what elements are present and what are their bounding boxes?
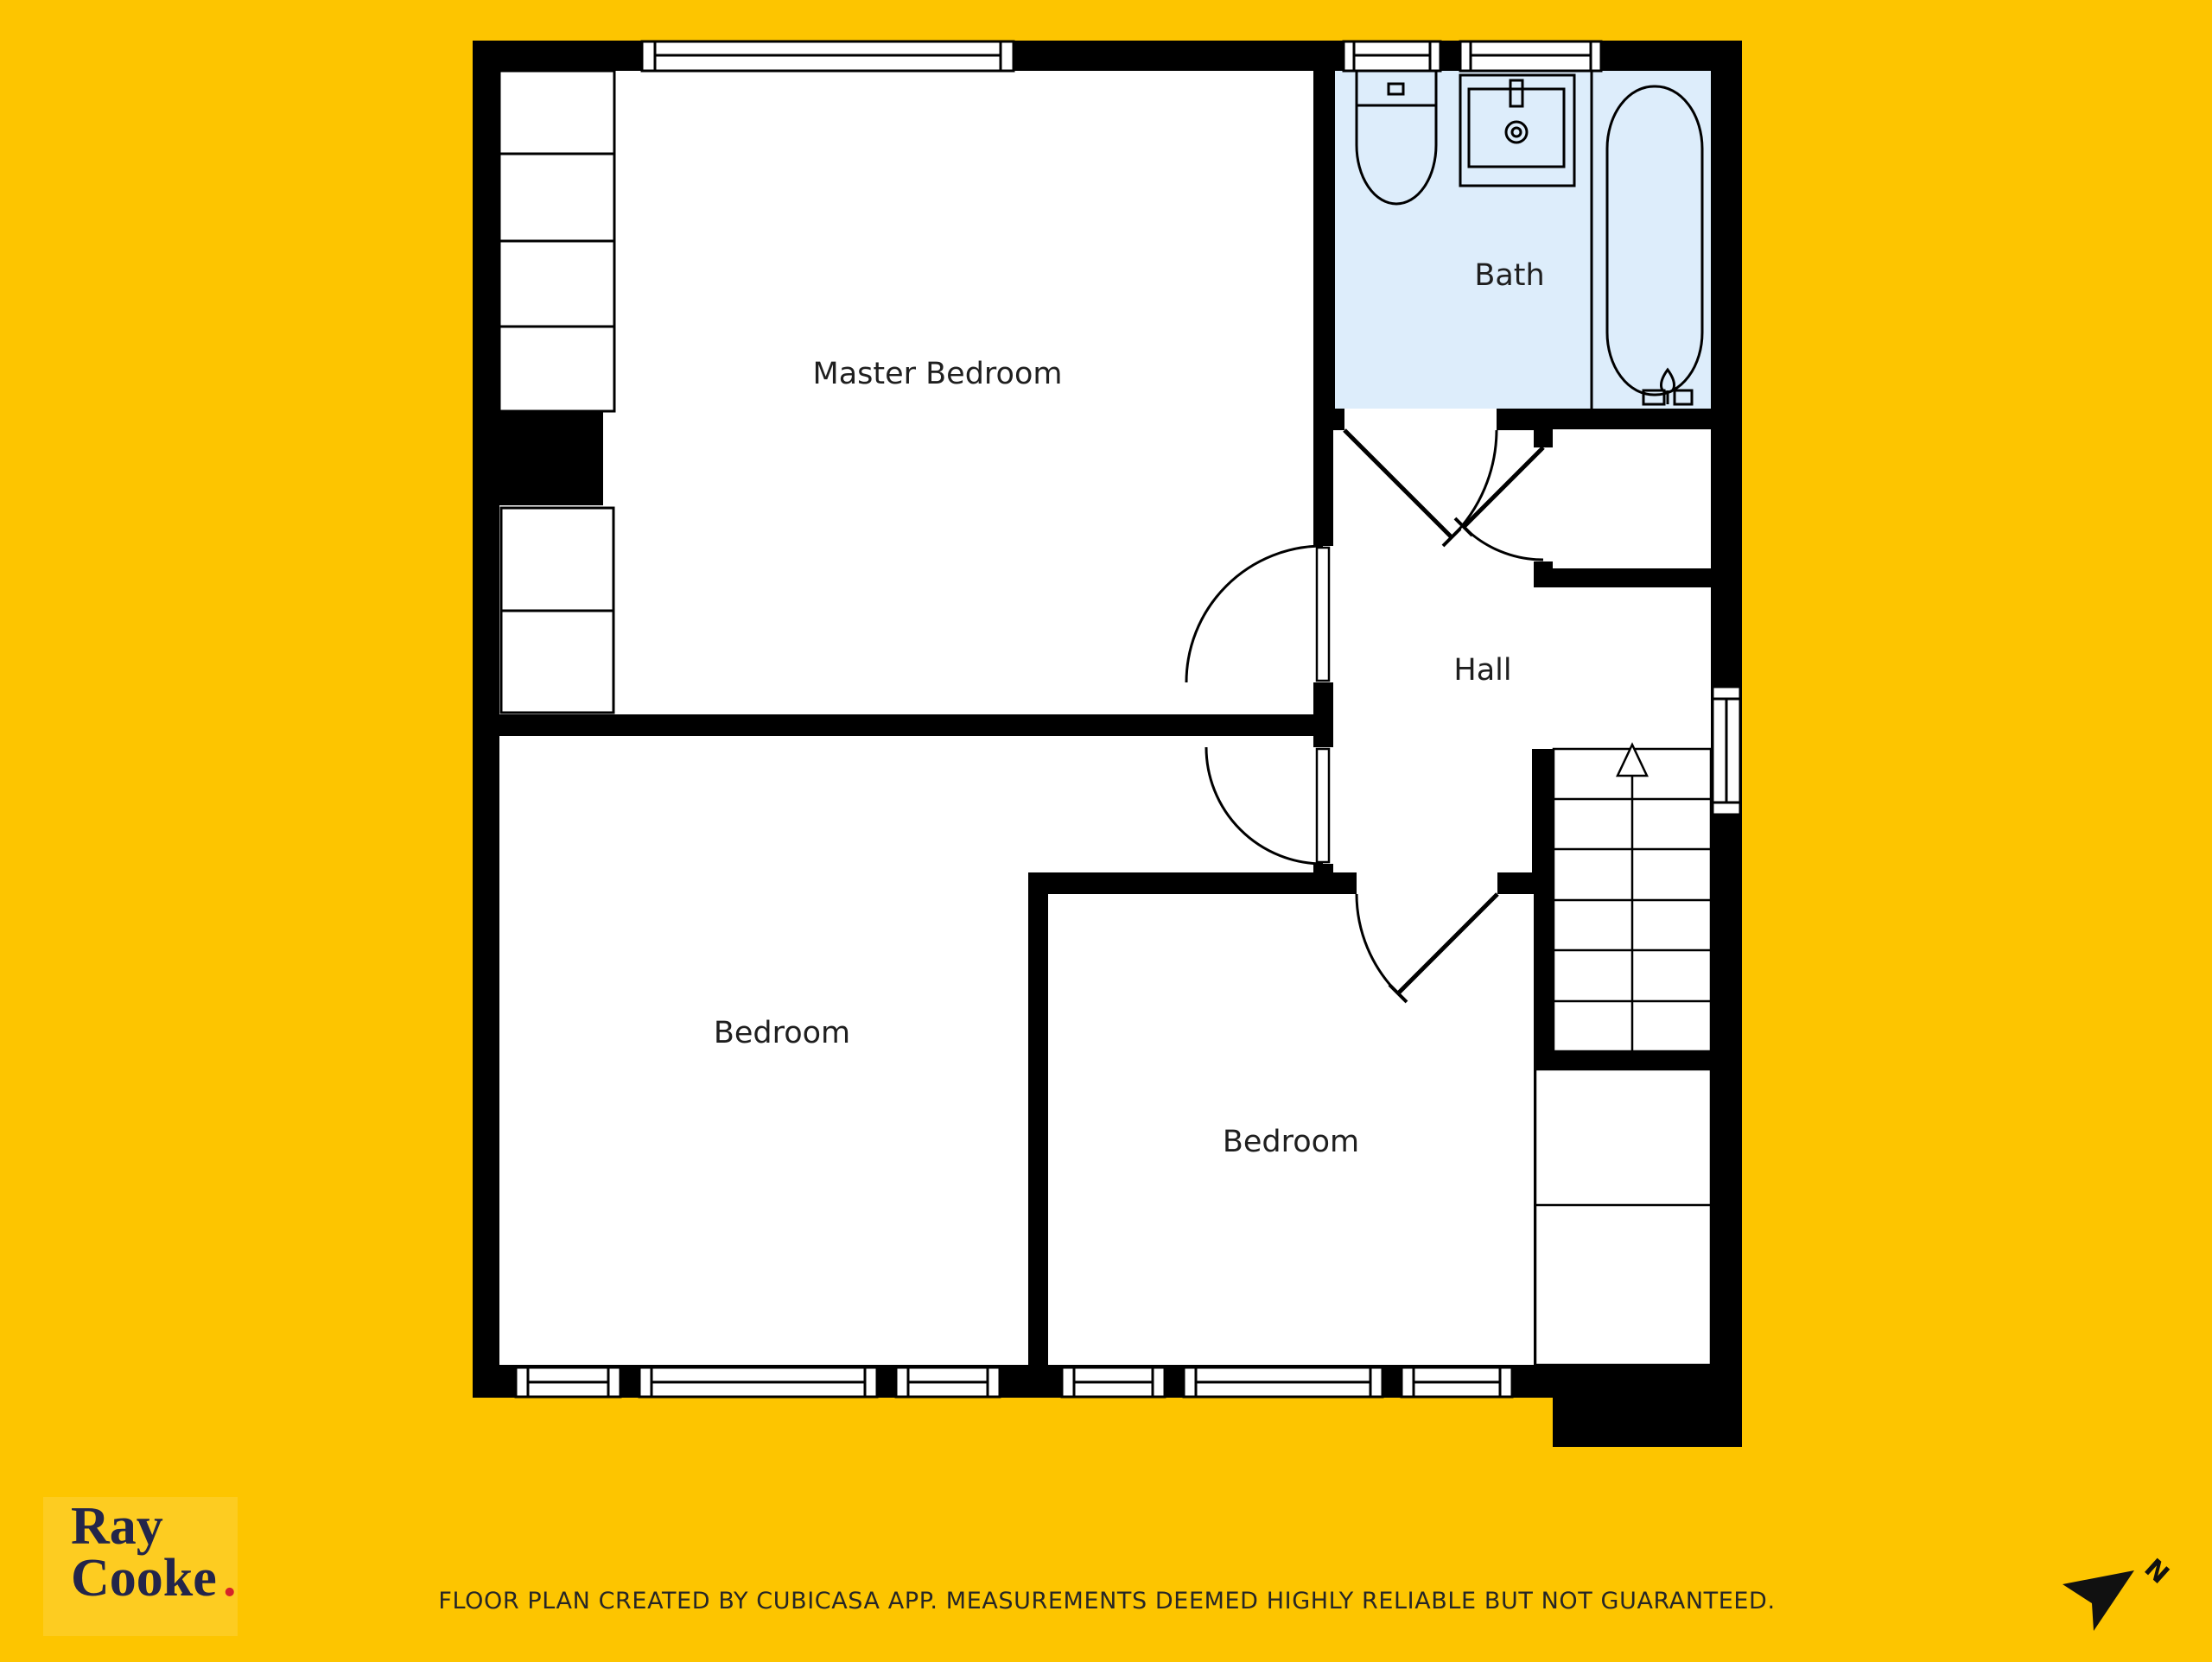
window [1344,41,1440,71]
window [1713,687,1740,815]
window [639,1367,877,1397]
floor-plan-page: Master Bedroom Bath Hall Bedroom Bedroom… [0,0,2212,1659]
north-arrow-label: N [2139,1553,2175,1590]
footer-disclaimer: FLOOR PLAN CREATED BY CUBICASA APP. MEAS… [438,1588,1775,1614]
wall-pillar [473,411,603,505]
window [516,1367,620,1397]
window [896,1367,1000,1397]
wall-step [1553,1398,1742,1447]
closet-room-floor [1553,429,1711,568]
bath-floor [1335,71,1711,409]
ray-cooke-logo: Ray Cooke . [43,1497,238,1636]
logo-text-line1: Ray [71,1497,163,1556]
understairs-closet-floor [1535,1069,1711,1365]
logo-dot: . [223,1549,237,1608]
floor-plan: Master Bedroom Bath Hall Bedroom Bedroom… [0,0,2212,1659]
wardrobe-boxes [499,71,614,713]
north-arrow-icon: N [2063,1553,2175,1631]
master-bedroom-floor [499,71,1313,714]
room-label-bedroom-right: Bedroom [1223,1125,1359,1159]
room-label-bedroom-left: Bedroom [714,1016,850,1050]
window [1460,41,1601,71]
room-label-hall: Hall [1453,653,1511,688]
window [1062,1367,1165,1397]
window [1402,1367,1512,1397]
room-label-master-bedroom: Master Bedroom [813,357,1063,391]
window [642,41,1014,71]
window [1184,1367,1382,1397]
logo-text-line2: Cooke [71,1549,217,1608]
room-label-bath: Bath [1474,258,1544,293]
